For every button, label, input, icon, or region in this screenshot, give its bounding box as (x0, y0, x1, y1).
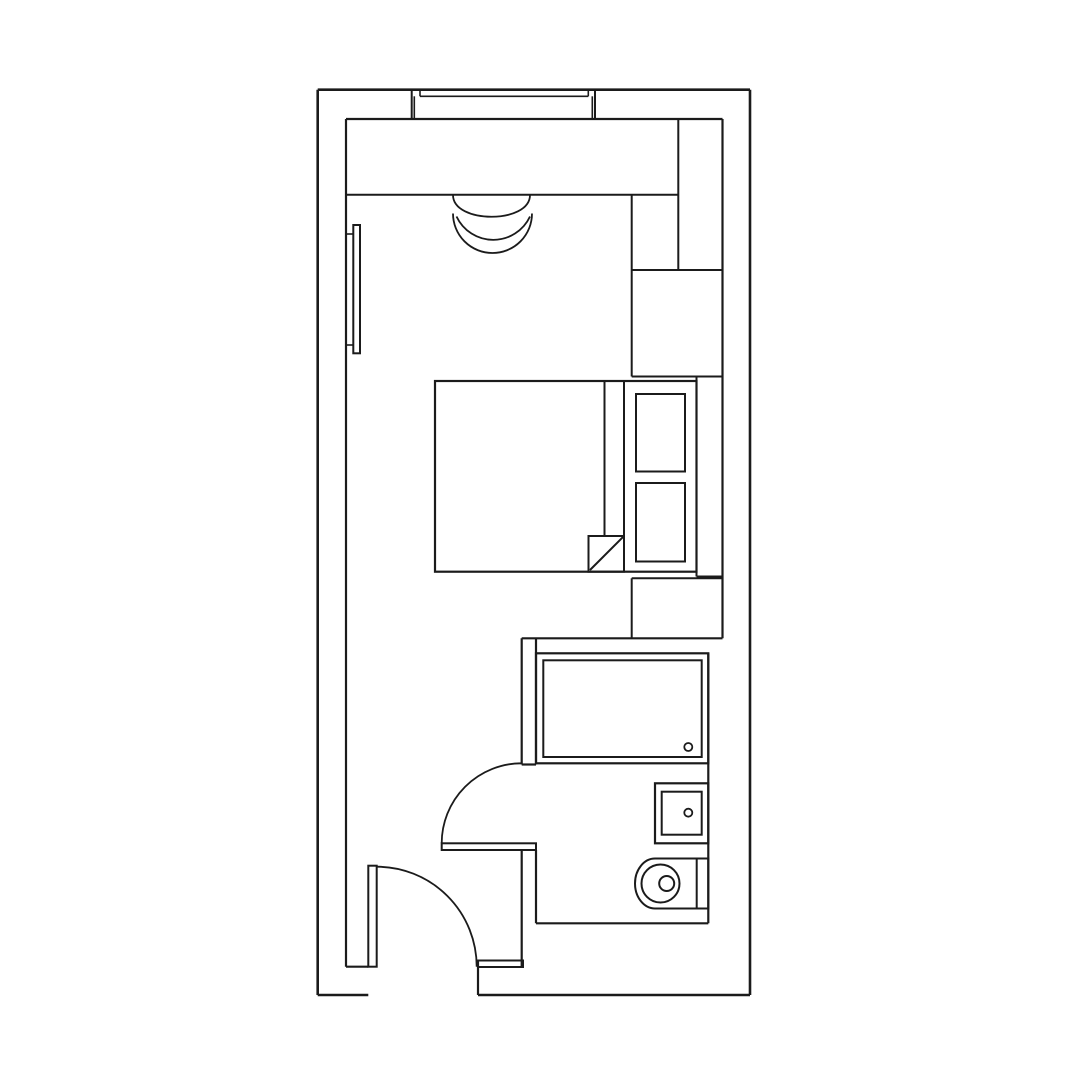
hotel-room-floor-plan (0, 0, 1080, 1080)
duvet-fold-diagonal (590, 537, 623, 570)
wall-tv-panel (353, 225, 360, 353)
pillow-top (636, 394, 685, 472)
bed-outline (435, 381, 697, 572)
sink-drain (684, 809, 692, 817)
shower-drain (684, 743, 692, 751)
shower-tray-inner (543, 660, 701, 757)
desk-chair-seat (453, 195, 530, 217)
desk-chair-back-outer (453, 214, 532, 254)
entry-wall-stub (478, 961, 523, 968)
toilet-tank (697, 859, 709, 909)
desk-chair-back-inner (457, 217, 531, 240)
entry-door-leaf (368, 866, 376, 967)
sink-basin-inner (662, 792, 702, 835)
pillow-bottom (636, 483, 685, 562)
shower-tray-outer (536, 653, 708, 763)
toilet-bowl-inner (659, 876, 674, 891)
bathroom-door-leaf (442, 843, 536, 850)
floor-plan-svg (0, 0, 1080, 1080)
bathroom-door-swing-arc (442, 763, 522, 843)
entry-door-swing-arc (377, 867, 477, 967)
